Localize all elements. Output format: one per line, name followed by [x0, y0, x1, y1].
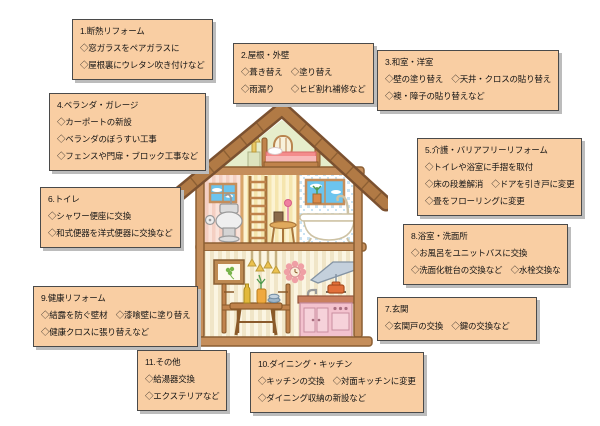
box-title: 5.介護・バリアフリーリフォーム: [425, 142, 574, 159]
box-item: ◇畳をフローリングに変更: [425, 193, 574, 210]
box-item: ◇窓ガラスをペアガラスに: [80, 40, 205, 57]
box-item: ◇お風呂をユニットバスに交換: [411, 245, 560, 262]
second-floor: [200, 175, 358, 243]
box-toilet: 6.トイレ ◇シャワー便座に交換 ◇和式便器を洋式便器に交換など: [40, 187, 181, 248]
box-item: ◇葺き替え ◇塗り替え: [241, 64, 366, 81]
toilet-window: [210, 184, 236, 202]
box-item: ◇健康クロスに張り替えなど: [41, 324, 190, 341]
house-base: [188, 337, 372, 346]
box-japanese-western-room: 3.和室・洋室 ◇壁の塗り替え ◇天井・クロスの貼り替え ◇襖・障子の貼り替えな…: [377, 50, 559, 111]
box-item: ◇雨漏り ◇ヒビ割れ補修など: [241, 81, 366, 98]
first-floor: [200, 251, 358, 337]
box-item: ◇襖・障子の貼り替えなど: [385, 88, 551, 105]
box-item: ◇シャワー便座に交換: [48, 208, 173, 225]
box-item: ◇キッチンの交換 ◇対面キッチンに変更: [258, 373, 416, 390]
box-title: 4.ベランダ・ガレージ: [57, 97, 198, 114]
floor-beam: [196, 243, 366, 251]
box-roof-exterior-wall: 2.屋根・外壁 ◇葺き替え ◇塗り替え ◇雨漏り ◇ヒビ割れ補修など: [233, 43, 374, 104]
box-veranda-garage: 4.ベランダ・ガレージ ◇カーポートの新設 ◇ベランダのぼうすい工事 ◇フェンス…: [49, 93, 206, 171]
box-other: 11.その他 ◇給湯器交換 ◇エクステリアなど: [137, 350, 227, 411]
box-entrance: 7.玄関 ◇玄関戸の交換 ◇鍵の交換など: [377, 297, 537, 341]
box-title: 1.断熱リフォーム: [80, 23, 205, 40]
box-item: ◇洗面化粧台の交換など ◇水栓交換な: [411, 262, 560, 279]
kitchen-counter: [298, 296, 354, 303]
box-item: ◇フェンスや門扉・ブロック工事など: [57, 148, 198, 165]
box-barrier-free: 5.介護・バリアフリーリフォーム ◇トイレや浴室に手摺を取付 ◇床の段差解消 ◇…: [417, 138, 582, 216]
box-title: 6.トイレ: [48, 191, 173, 208]
box-item: ◇屋根裏にウレタン吹き付けなど: [80, 57, 205, 74]
box-title: 10.ダイニング・キッチン: [258, 356, 416, 373]
box-item: ◇床の段差解消 ◇ドアを引き戸に変更: [425, 176, 574, 193]
box-insulation: 1.断熱リフォーム ◇窓ガラスをペアガラスに ◇屋根裏にウレタン吹き付けなど: [72, 19, 213, 80]
box-item: ◇トイレや浴室に手摺を取付: [425, 159, 574, 176]
box-item: ◇ダイニング収納の新設など: [258, 390, 416, 407]
box-title: 9.健康リフォーム: [41, 290, 190, 307]
box-title: 7.玄関: [385, 301, 529, 318]
table-bottle: [244, 284, 250, 303]
wall-clock: [284, 261, 306, 283]
box-bathroom-washroom: 8.浴室・洗面所 ◇お風呂をユニットバスに交換 ◇洗面化粧台の交換など ◇水栓交…: [403, 224, 568, 285]
box-item: ◇給湯器交換: [145, 371, 219, 388]
box-dining-kitchen: 10.ダイニング・キッチン ◇キッチンの交換 ◇対面キッチンに変更 ◇ダイニング…: [250, 352, 424, 413]
box-title: 8.浴室・洗面所: [411, 228, 560, 245]
box-item: ◇カーポートの新設: [57, 114, 198, 131]
box-title: 3.和室・洋室: [385, 54, 551, 71]
box-item: ◇和式便器を洋式便器に交換など: [48, 225, 173, 242]
box-item: ◇ベランダのぼうすい工事: [57, 131, 198, 148]
box-health-reform: 9.健康リフォーム ◇結露を防ぐ壁材 ◇漆喰壁に塗り替え ◇健康クロスに張り替え…: [33, 286, 198, 347]
box-item: ◇壁の塗り替え ◇天井・クロスの貼り替え: [385, 71, 551, 88]
box-item: ◇結露を防ぐ壁材 ◇漆喰壁に塗り替え: [41, 307, 190, 324]
wall-picture-frame: [214, 260, 244, 284]
box-item: ◇エクステリアなど: [145, 388, 219, 405]
box-title: 2.屋根・外壁: [241, 47, 366, 64]
box-title: 11.その他: [145, 354, 219, 371]
right-wall-post: [354, 176, 362, 337]
renovation-diagram: 1.断熱リフォーム ◇窓ガラスをペアガラスに ◇屋根裏にウレタン吹き付けなど 2…: [0, 0, 600, 426]
table-bowls: [268, 294, 280, 302]
box-item: ◇玄関戸の交換 ◇鍵の交換など: [385, 318, 529, 335]
